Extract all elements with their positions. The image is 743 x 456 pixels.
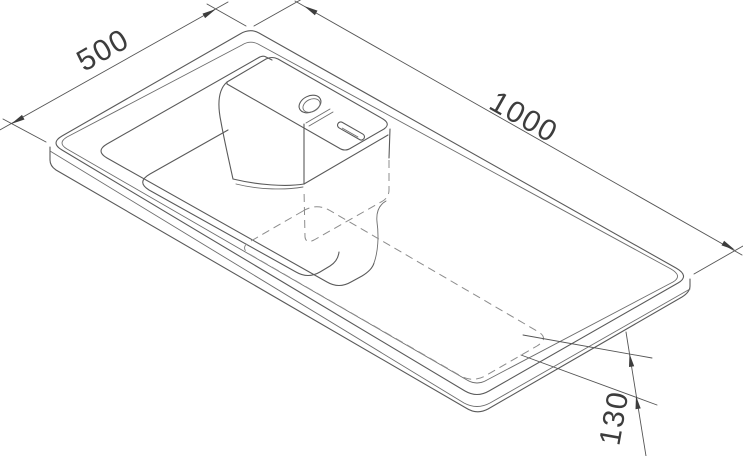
isometric-sink-drawing: 500 1000 130	[0, 0, 743, 456]
background	[0, 0, 743, 456]
drawing-canvas: 500 1000 130	[0, 0, 743, 456]
